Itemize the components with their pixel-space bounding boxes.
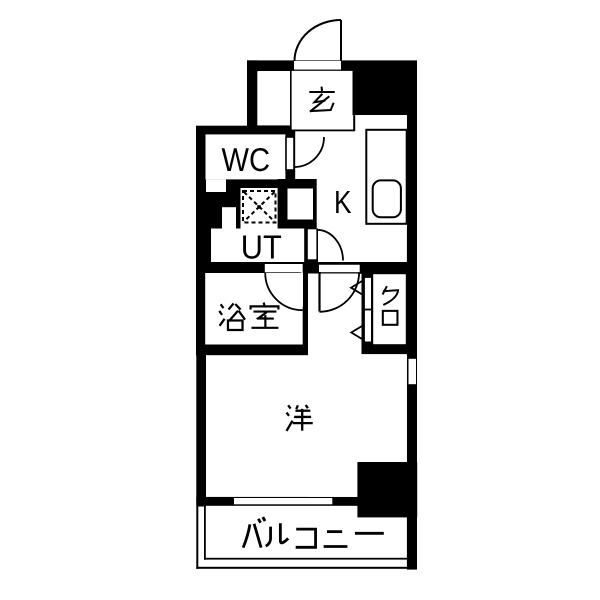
svg-text:WC: WC [222,141,271,178]
svg-text:UT: UT [241,230,282,267]
svg-text:K: K [334,184,352,220]
